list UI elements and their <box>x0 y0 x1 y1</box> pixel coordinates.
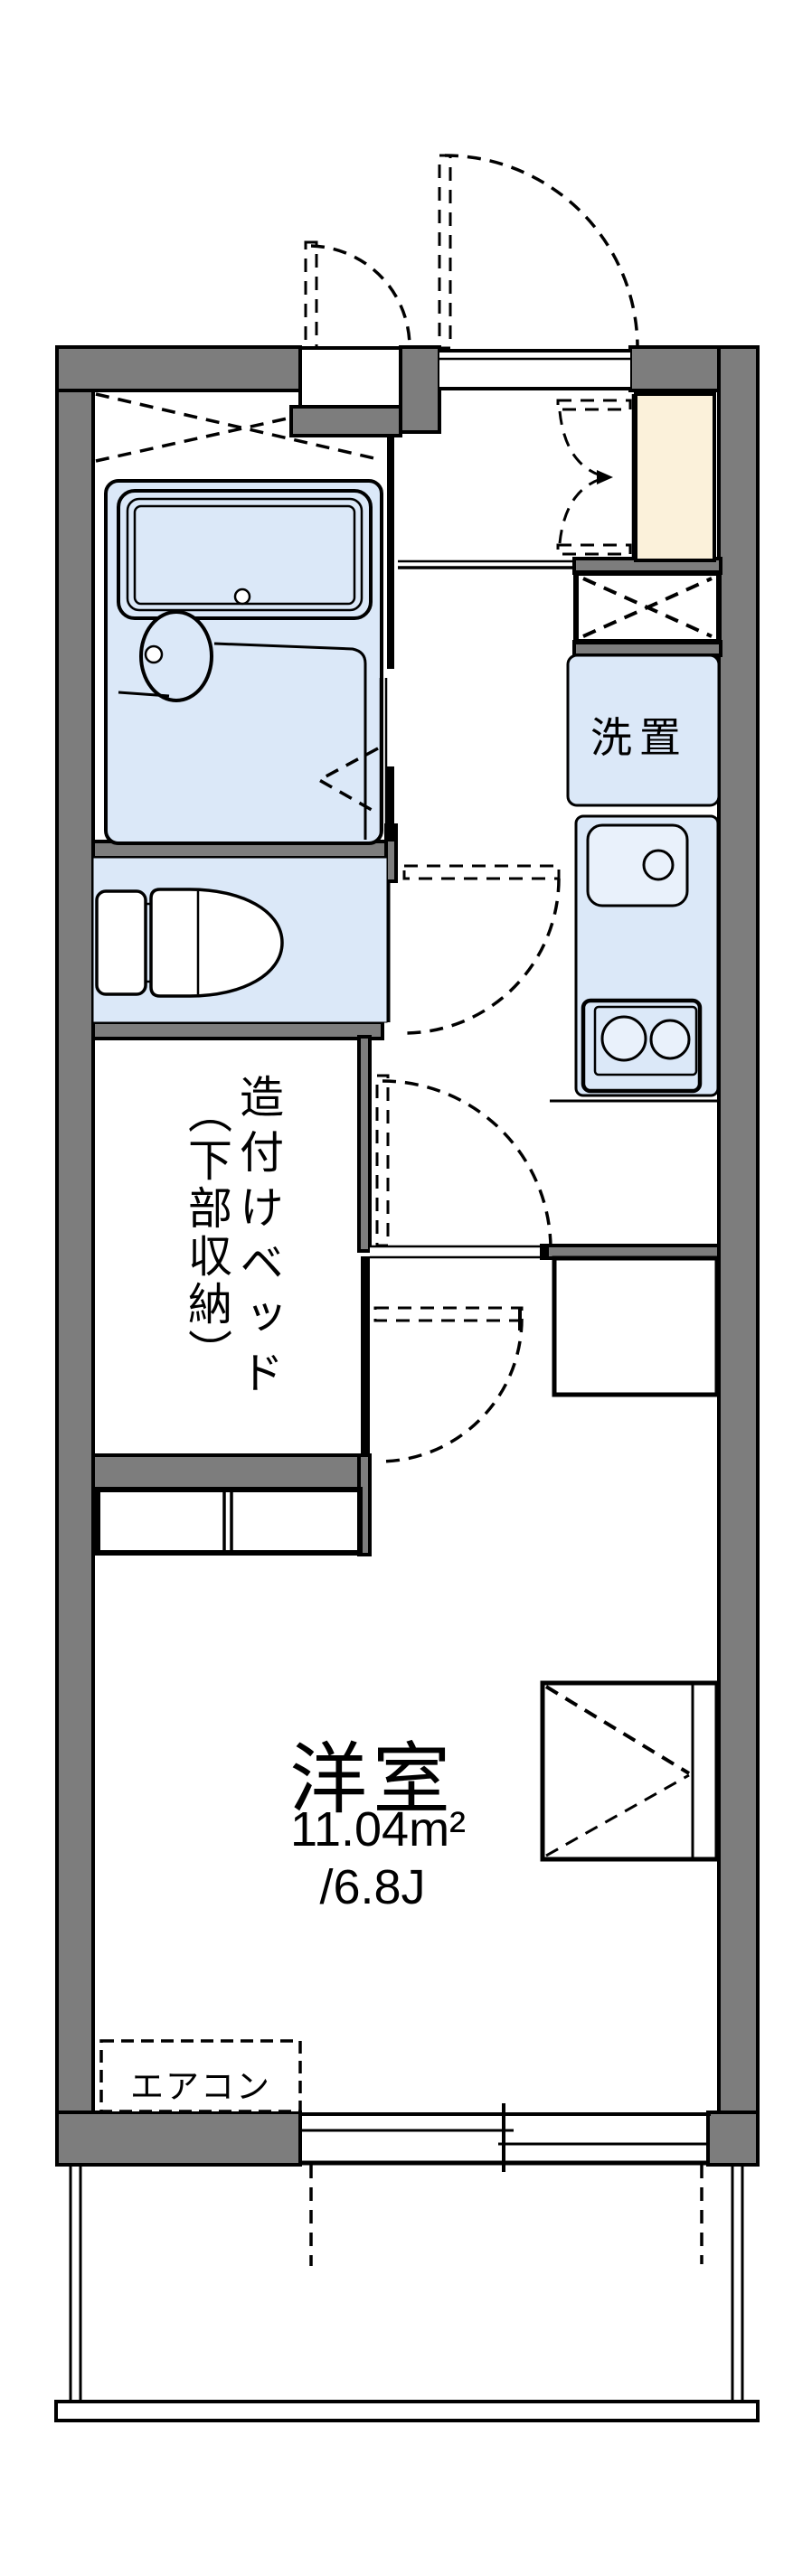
aircon-label: エアコン <box>130 2059 271 2108</box>
bed-label-line2: （下部収納） <box>175 1089 239 1377</box>
niche-door-swing-icon <box>306 242 410 348</box>
basin-faucet-icon <box>146 646 162 663</box>
entrance-opening <box>439 349 630 390</box>
kitchen-counter <box>550 816 718 1101</box>
entrance-door-swing-icon <box>439 155 637 348</box>
washer-place-label: 洗置 <box>590 705 688 765</box>
floor-plan-drawing <box>0 0 812 2576</box>
balcony-rail <box>56 2402 758 2421</box>
window-counter-box <box>543 1683 717 1859</box>
balcony-window <box>300 2103 711 2172</box>
toilet-tank <box>97 891 146 994</box>
main-room-area-sqm: 11.04m² <box>290 1801 466 1857</box>
burner-icon <box>602 1017 646 1060</box>
faucet-icon <box>644 851 673 879</box>
burner-icon <box>651 1020 689 1058</box>
drain-icon <box>235 589 250 604</box>
shoe-cabinet <box>633 394 714 560</box>
main-room-area-tatami: /6.8J <box>319 1859 425 1915</box>
washing-machine-box <box>576 573 719 642</box>
bed-storage-shelf <box>98 1490 360 1553</box>
floor-plan: 洗置 造付けベッド （下部収納） 洋室 11.04m² /6.8J エアコン <box>0 0 812 2576</box>
refrigerator-space <box>554 1258 717 1395</box>
balcony <box>56 2165 758 2421</box>
wall-niche <box>300 348 401 407</box>
